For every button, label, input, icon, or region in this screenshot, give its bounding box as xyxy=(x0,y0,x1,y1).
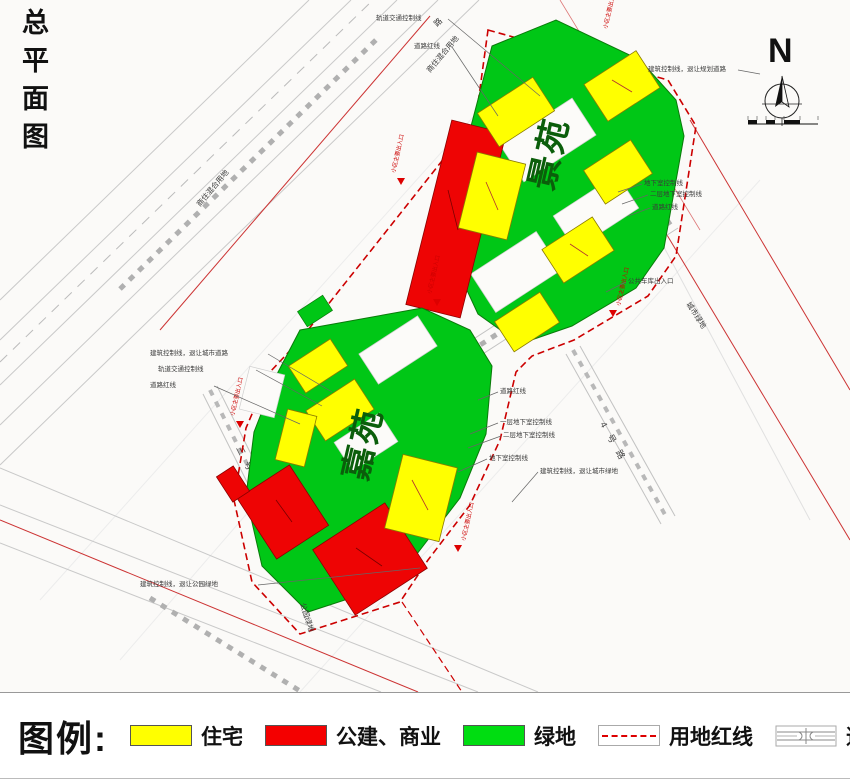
residential-swatch xyxy=(130,725,192,746)
green-patch xyxy=(298,295,333,326)
site-plan-drawing: 4号路 三号路 xyxy=(0,0,850,692)
legend-item-commercial: 公建、商业 xyxy=(265,721,441,751)
land-redline-swatch xyxy=(598,725,660,746)
legend-label: 绿地 xyxy=(534,721,576,751)
annotation: 公共车库出入口 xyxy=(628,276,674,285)
annotation: 道路红线 xyxy=(150,380,177,389)
entrance-marker-icon xyxy=(454,545,462,552)
annotation: 轨道交通控制线 xyxy=(158,364,204,373)
parcel-jiayuan: 嘉苑 xyxy=(216,295,492,615)
page-title: 总平面图 xyxy=(14,8,53,160)
commercial-swatch xyxy=(265,725,327,746)
annotation: 道路红线 xyxy=(500,386,527,395)
road-4: 4号路 xyxy=(566,346,675,524)
master-plan-page: 总平面图 xyxy=(0,0,850,779)
legend-item-green: 绿地 xyxy=(463,721,576,751)
legend-item-land-redline: 用地红线 xyxy=(598,721,753,751)
annotation: 道路红线 xyxy=(414,41,441,50)
annotation: 建筑控制线，退让城市道路 xyxy=(150,348,229,357)
entrance-label: 小区主要出入口 xyxy=(601,0,618,29)
annotation: 建筑控制线，退让城市绿地 xyxy=(540,466,619,475)
annotation: 道路红线 xyxy=(652,202,679,211)
annotation: 轨道交通控制线 xyxy=(376,13,422,22)
entrance-marker-icon xyxy=(609,310,617,317)
annotation: 二层地下室控制线 xyxy=(650,189,703,198)
annotation: 地下室控制线 xyxy=(644,178,684,187)
scale-bar xyxy=(748,116,818,124)
legend-label: 公建、商业 xyxy=(336,721,441,751)
entrance-marker-icon xyxy=(397,178,405,185)
legend-bar: 图例: 住宅 公建、商业 绿地 用地红线 xyxy=(0,692,850,779)
annotation: 建筑控制线，退让公园绿地 xyxy=(140,579,219,588)
parcel-jingyuan: 景苑 xyxy=(406,20,684,352)
annotation: 路 xyxy=(431,16,444,29)
entrance-label: 小区主要出入口 xyxy=(389,133,406,173)
north-needle xyxy=(775,76,782,107)
legend-item-road-redline: 道路红线 xyxy=(775,721,850,751)
north-arrow: N xyxy=(748,32,818,126)
annotation: 一层地下室控制线 xyxy=(500,417,553,426)
annotation: 城市绿地 xyxy=(684,300,709,331)
annotation: 二层地下室控制线 xyxy=(503,430,556,439)
legend-label: 用地红线 xyxy=(669,721,753,751)
legend-item-residential: 住宅 xyxy=(130,721,243,751)
north-label: N xyxy=(768,32,793,70)
annotation: 商住混合用地 xyxy=(424,33,461,74)
annotation: 地下室控制线 xyxy=(489,453,529,462)
legend-label: 住宅 xyxy=(201,721,243,751)
legend-label: 道路红线 xyxy=(846,721,850,751)
annotation: 建筑控制线，退让规划道路 xyxy=(648,64,727,73)
legend-heading: 图例: xyxy=(18,710,108,762)
road-redline-symbol xyxy=(775,724,837,748)
green-space-swatch xyxy=(463,725,525,746)
